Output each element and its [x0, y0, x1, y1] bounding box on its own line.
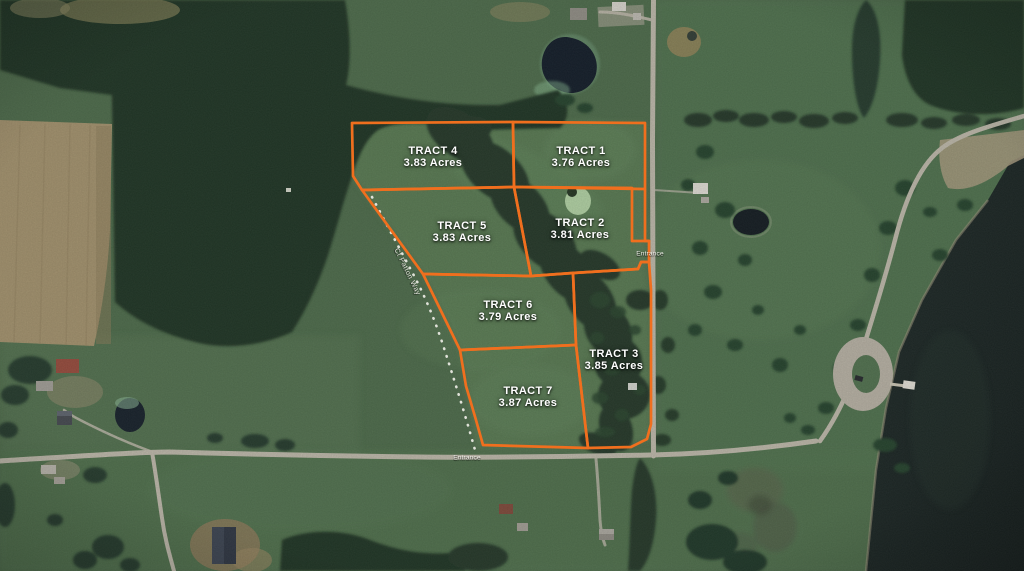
- satellite-imagery: [0, 0, 1024, 571]
- aerial-parcel-map: TRACT 1 3.76 Acres TRACT 2 3.81 Acres TR…: [0, 0, 1024, 571]
